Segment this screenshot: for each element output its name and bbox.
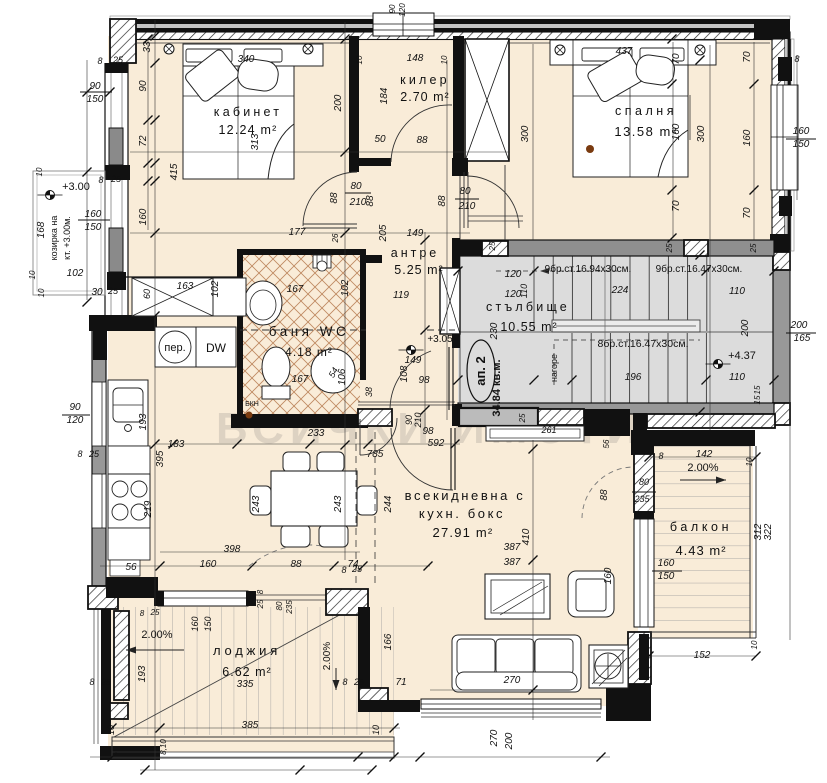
- svg-text:10: 10: [750, 640, 759, 649]
- svg-text:148: 148: [407, 53, 424, 64]
- svg-text:395: 395: [155, 450, 166, 467]
- svg-text:110: 110: [729, 372, 745, 383]
- svg-text:300: 300: [696, 125, 707, 142]
- svg-text:12.24 m²: 12.24 m²: [219, 123, 278, 137]
- svg-text:4.43 m²: 4.43 m²: [675, 543, 726, 558]
- svg-text:10.55 m²: 10.55 m²: [500, 320, 557, 334]
- svg-text:270: 270: [503, 675, 521, 686]
- svg-text:150: 150: [793, 139, 810, 150]
- svg-text:149: 149: [405, 355, 422, 366]
- svg-text:88: 88: [290, 559, 302, 570]
- svg-text:72: 72: [138, 135, 149, 147]
- svg-text:9бр.ст.16.47x30см.: 9бр.ст.16.47x30см.: [656, 263, 743, 275]
- svg-text:90: 90: [388, 4, 397, 13]
- svg-text:90: 90: [89, 81, 101, 92]
- svg-text:88: 88: [599, 489, 610, 501]
- svg-text:8бр.ст.16.47x30см.: 8бр.ст.16.47x30см.: [597, 338, 688, 350]
- svg-text:230: 230: [489, 322, 500, 340]
- svg-text:150: 150: [87, 94, 104, 105]
- svg-text:167: 167: [292, 374, 309, 385]
- svg-text:15: 15: [753, 385, 762, 394]
- svg-text:8: 8: [97, 56, 102, 66]
- svg-text:193: 193: [137, 665, 148, 682]
- svg-text:120: 120: [67, 415, 84, 426]
- svg-text:56: 56: [125, 562, 137, 573]
- svg-text:244: 244: [383, 495, 394, 513]
- svg-text:160: 160: [742, 129, 753, 146]
- svg-text:196: 196: [625, 372, 642, 383]
- svg-text:160: 160: [603, 567, 614, 584]
- svg-text:219: 219: [143, 500, 154, 518]
- svg-text:DW: DW: [206, 341, 227, 355]
- svg-text:козирка на: козирка на: [49, 216, 59, 261]
- svg-text:163: 163: [177, 281, 194, 292]
- svg-text:килер: килер: [400, 73, 450, 87]
- svg-text:385: 385: [242, 720, 259, 731]
- svg-text:38: 38: [364, 387, 374, 397]
- svg-text:152: 152: [694, 650, 711, 661]
- svg-text:2.70 m²: 2.70 m²: [400, 90, 449, 104]
- svg-text:8: 8: [794, 54, 799, 64]
- svg-text:10: 10: [355, 55, 364, 64]
- svg-text:БКН: БКН: [245, 401, 259, 408]
- svg-text:71: 71: [395, 677, 406, 688]
- svg-text:6.62 m²: 6.62 m²: [222, 665, 271, 679]
- svg-text:150: 150: [203, 616, 213, 631]
- svg-text:88: 88: [365, 195, 376, 207]
- svg-text:340: 340: [238, 54, 255, 65]
- svg-text:8: 8: [89, 677, 94, 687]
- svg-text:25: 25: [353, 677, 365, 687]
- svg-text:300: 300: [520, 125, 531, 142]
- svg-text:235: 235: [285, 600, 294, 615]
- svg-text:106: 106: [337, 368, 348, 385]
- svg-text:70: 70: [671, 200, 682, 212]
- svg-text:25: 25: [112, 55, 124, 65]
- svg-text:235: 235: [633, 494, 650, 504]
- svg-text:70: 70: [742, 207, 753, 219]
- svg-text:5.25 m²: 5.25 m²: [394, 263, 443, 277]
- svg-text:10: 10: [745, 457, 754, 466]
- svg-text:387: 387: [504, 557, 521, 568]
- svg-text:34.84 кв.м.: 34.84 кв.м.: [491, 359, 503, 416]
- svg-text:261: 261: [540, 425, 556, 435]
- svg-text:25: 25: [100, 677, 112, 687]
- svg-text:150: 150: [658, 571, 675, 582]
- svg-text:2.00%: 2.00%: [141, 629, 172, 641]
- svg-text:спалня: спалня: [615, 104, 677, 118]
- svg-text:8: 8: [341, 565, 346, 575]
- svg-text:25: 25: [88, 449, 100, 459]
- svg-text:168: 168: [36, 221, 47, 238]
- svg-text:98: 98: [418, 375, 430, 386]
- svg-text:8: 8: [256, 589, 265, 594]
- svg-text:437: 437: [616, 46, 633, 57]
- svg-text:142: 142: [696, 449, 713, 460]
- svg-text:210: 210: [458, 201, 476, 212]
- svg-text:200: 200: [333, 94, 344, 112]
- svg-text:8: 8: [140, 609, 145, 618]
- svg-text:8: 8: [342, 677, 347, 687]
- svg-text:9бр.ст.16.94x30см.: 9бр.ст.16.94x30см.: [545, 263, 632, 275]
- svg-text:165: 165: [794, 333, 811, 344]
- svg-text:15: 15: [753, 395, 762, 404]
- svg-text:167: 167: [287, 284, 304, 295]
- svg-text:177: 177: [289, 227, 306, 238]
- svg-text:25: 25: [256, 599, 265, 609]
- svg-text:205: 205: [378, 224, 389, 242]
- svg-text:88: 88: [416, 135, 428, 146]
- svg-text:200: 200: [740, 319, 751, 337]
- svg-text:80: 80: [459, 186, 471, 197]
- svg-text:26: 26: [331, 233, 340, 243]
- svg-text:25: 25: [107, 286, 119, 296]
- svg-text:150: 150: [85, 222, 102, 233]
- svg-text:80: 80: [639, 477, 649, 487]
- svg-text:13.58 m²: 13.58 m²: [614, 124, 677, 139]
- svg-text:160: 160: [85, 209, 102, 220]
- svg-text:пер.: пер.: [164, 342, 185, 354]
- svg-text:балкон: балкон: [670, 520, 732, 534]
- svg-text:8: 8: [658, 451, 663, 461]
- svg-text:лоджия: лоджия: [213, 643, 281, 658]
- svg-text:120: 120: [398, 3, 407, 17]
- svg-text:8,10: 8,10: [159, 739, 168, 755]
- svg-text:110: 110: [729, 286, 745, 297]
- svg-text:108: 108: [399, 365, 410, 382]
- svg-text:160: 160: [190, 616, 200, 631]
- svg-text:224: 224: [611, 285, 629, 296]
- svg-text:785: 785: [367, 449, 384, 460]
- svg-text:166: 166: [383, 633, 394, 650]
- svg-text:10: 10: [440, 55, 449, 64]
- svg-text:398: 398: [224, 544, 241, 555]
- svg-text:102: 102: [67, 268, 84, 279]
- svg-text:баня WC: баня WC: [269, 324, 349, 339]
- svg-text:160: 160: [671, 123, 682, 140]
- svg-text:25: 25: [110, 174, 122, 184]
- svg-text:10: 10: [106, 725, 116, 735]
- svg-text:88: 88: [329, 192, 340, 204]
- svg-text:8: 8: [77, 449, 82, 459]
- svg-text:415: 415: [169, 163, 180, 180]
- svg-text:27.91 m²: 27.91 m²: [433, 525, 494, 540]
- svg-text:160: 160: [793, 126, 810, 137]
- svg-text:ап. 2: ап. 2: [473, 356, 488, 386]
- svg-text:60: 60: [142, 289, 152, 299]
- svg-text:10: 10: [35, 167, 44, 176]
- svg-text:160: 160: [658, 558, 675, 569]
- svg-text:кт. +3.00м.: кт. +3.00м.: [62, 216, 72, 260]
- svg-text:всекидневна с: всекидневна с: [405, 488, 526, 503]
- svg-text:25: 25: [665, 243, 674, 253]
- svg-text:98: 98: [422, 426, 434, 437]
- svg-text:90: 90: [69, 402, 81, 413]
- svg-text:200: 200: [790, 320, 808, 331]
- svg-text:183: 183: [168, 439, 185, 450]
- svg-text:335: 335: [237, 679, 254, 690]
- svg-text:322: 322: [763, 523, 774, 540]
- svg-text:70: 70: [671, 53, 682, 65]
- svg-text:10: 10: [28, 270, 37, 279]
- svg-text:243: 243: [333, 495, 344, 513]
- svg-text:25: 25: [150, 608, 160, 617]
- svg-text:кухн. бокс: кухн. бокс: [419, 506, 505, 521]
- svg-text:119: 119: [393, 290, 409, 301]
- svg-text:102: 102: [210, 280, 221, 297]
- svg-text:25: 25: [351, 564, 363, 574]
- svg-text:193: 193: [138, 413, 149, 430]
- svg-text:8: 8: [98, 175, 103, 185]
- svg-text:4.18 m²: 4.18 m²: [285, 345, 333, 359]
- svg-text:592: 592: [428, 438, 445, 449]
- svg-text:нагоре: нагоре: [549, 354, 559, 382]
- svg-text:2.00%: 2.00%: [687, 462, 718, 474]
- svg-text:102: 102: [340, 279, 351, 296]
- svg-text:120: 120: [505, 269, 522, 280]
- svg-text:25: 25: [488, 241, 497, 251]
- svg-text:25: 25: [749, 243, 758, 253]
- svg-text:30: 30: [91, 287, 103, 298]
- svg-text:200: 200: [504, 732, 515, 750]
- svg-text:10: 10: [37, 288, 46, 297]
- svg-text:233: 233: [307, 428, 325, 439]
- svg-text:25: 25: [518, 413, 527, 423]
- svg-text:+4.37: +4.37: [728, 350, 756, 362]
- svg-text:кабинет: кабинет: [214, 105, 282, 119]
- svg-text:стълбище: стълбище: [486, 300, 570, 314]
- svg-text:110: 110: [519, 284, 529, 298]
- svg-text:80: 80: [275, 601, 284, 610]
- svg-text:10: 10: [371, 725, 381, 735]
- svg-text:+3.00: +3.00: [62, 181, 90, 193]
- svg-text:160: 160: [138, 208, 149, 225]
- svg-text:270: 270: [489, 729, 500, 747]
- svg-text:2.00%: 2.00%: [322, 642, 333, 670]
- svg-text:50: 50: [374, 134, 386, 145]
- svg-text:160: 160: [200, 559, 217, 570]
- svg-text:56: 56: [602, 439, 611, 448]
- svg-text:70: 70: [742, 51, 753, 63]
- svg-text:33: 33: [142, 41, 153, 53]
- svg-text:антре: антре: [391, 246, 439, 260]
- svg-text:387: 387: [504, 542, 521, 553]
- svg-text:90: 90: [138, 80, 149, 92]
- svg-text:+3.05: +3.05: [427, 334, 453, 345]
- svg-text:149: 149: [407, 228, 424, 239]
- svg-text:88: 88: [437, 195, 448, 207]
- svg-text:410: 410: [521, 528, 532, 545]
- svg-text:243: 243: [251, 495, 262, 513]
- svg-text:184: 184: [379, 87, 390, 104]
- svg-text:80: 80: [350, 181, 362, 192]
